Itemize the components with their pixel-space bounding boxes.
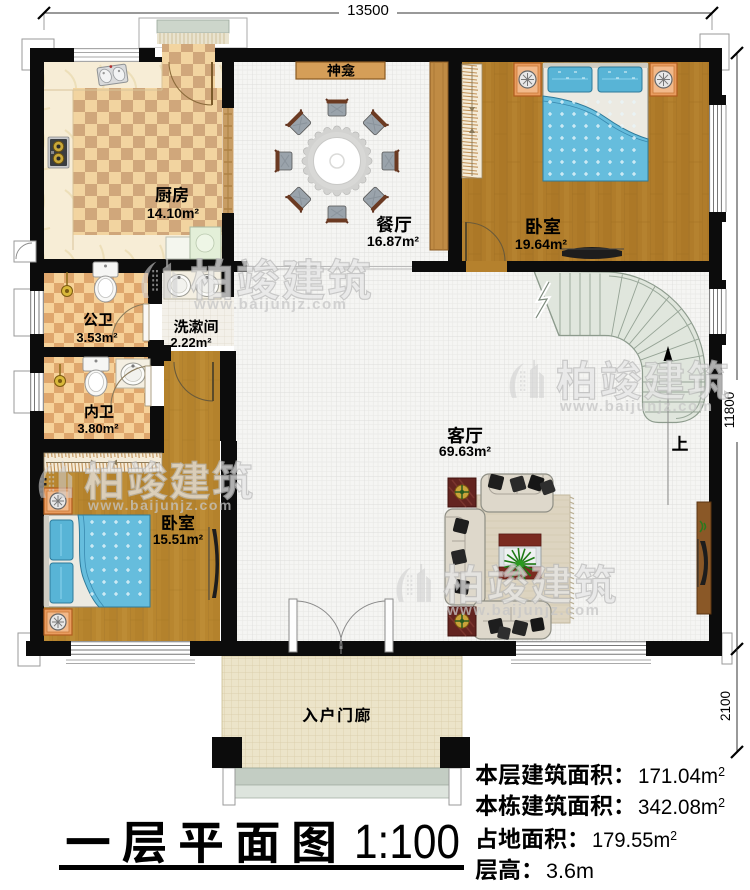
svg-text:179.55m2: 179.55m2	[592, 828, 677, 852]
svg-text:69.63m²: 69.63m²	[439, 443, 491, 459]
svg-text:3.6m: 3.6m	[546, 859, 594, 883]
svg-text:www.baijunjz.com: www.baijunjz.com	[446, 602, 600, 619]
svg-text:171.04m2: 171.04m2	[638, 764, 725, 788]
svg-text:19.64m²: 19.64m²	[515, 236, 567, 252]
svg-text:2100: 2100	[718, 691, 733, 721]
svg-text:342.08m2: 342.08m2	[638, 795, 725, 819]
svg-text:www.baijunjz.com: www.baijunjz.com	[559, 398, 713, 415]
svg-text:www.baijunjz.com: www.baijunjz.com	[193, 296, 347, 313]
svg-text:1:100: 1:100	[354, 816, 460, 869]
svg-text:15.51m²: 15.51m²	[153, 532, 204, 547]
svg-text:2.22m²: 2.22m²	[170, 335, 212, 350]
svg-text:16.87m²: 16.87m²	[367, 233, 419, 249]
svg-text:3.80m²: 3.80m²	[77, 421, 119, 436]
svg-text:13500: 13500	[347, 2, 389, 19]
svg-text:www.baijunjz.com: www.baijunjz.com	[87, 497, 233, 513]
svg-text:3.53m²: 3.53m²	[76, 330, 118, 345]
svg-text:14.10m²: 14.10m²	[147, 205, 199, 221]
